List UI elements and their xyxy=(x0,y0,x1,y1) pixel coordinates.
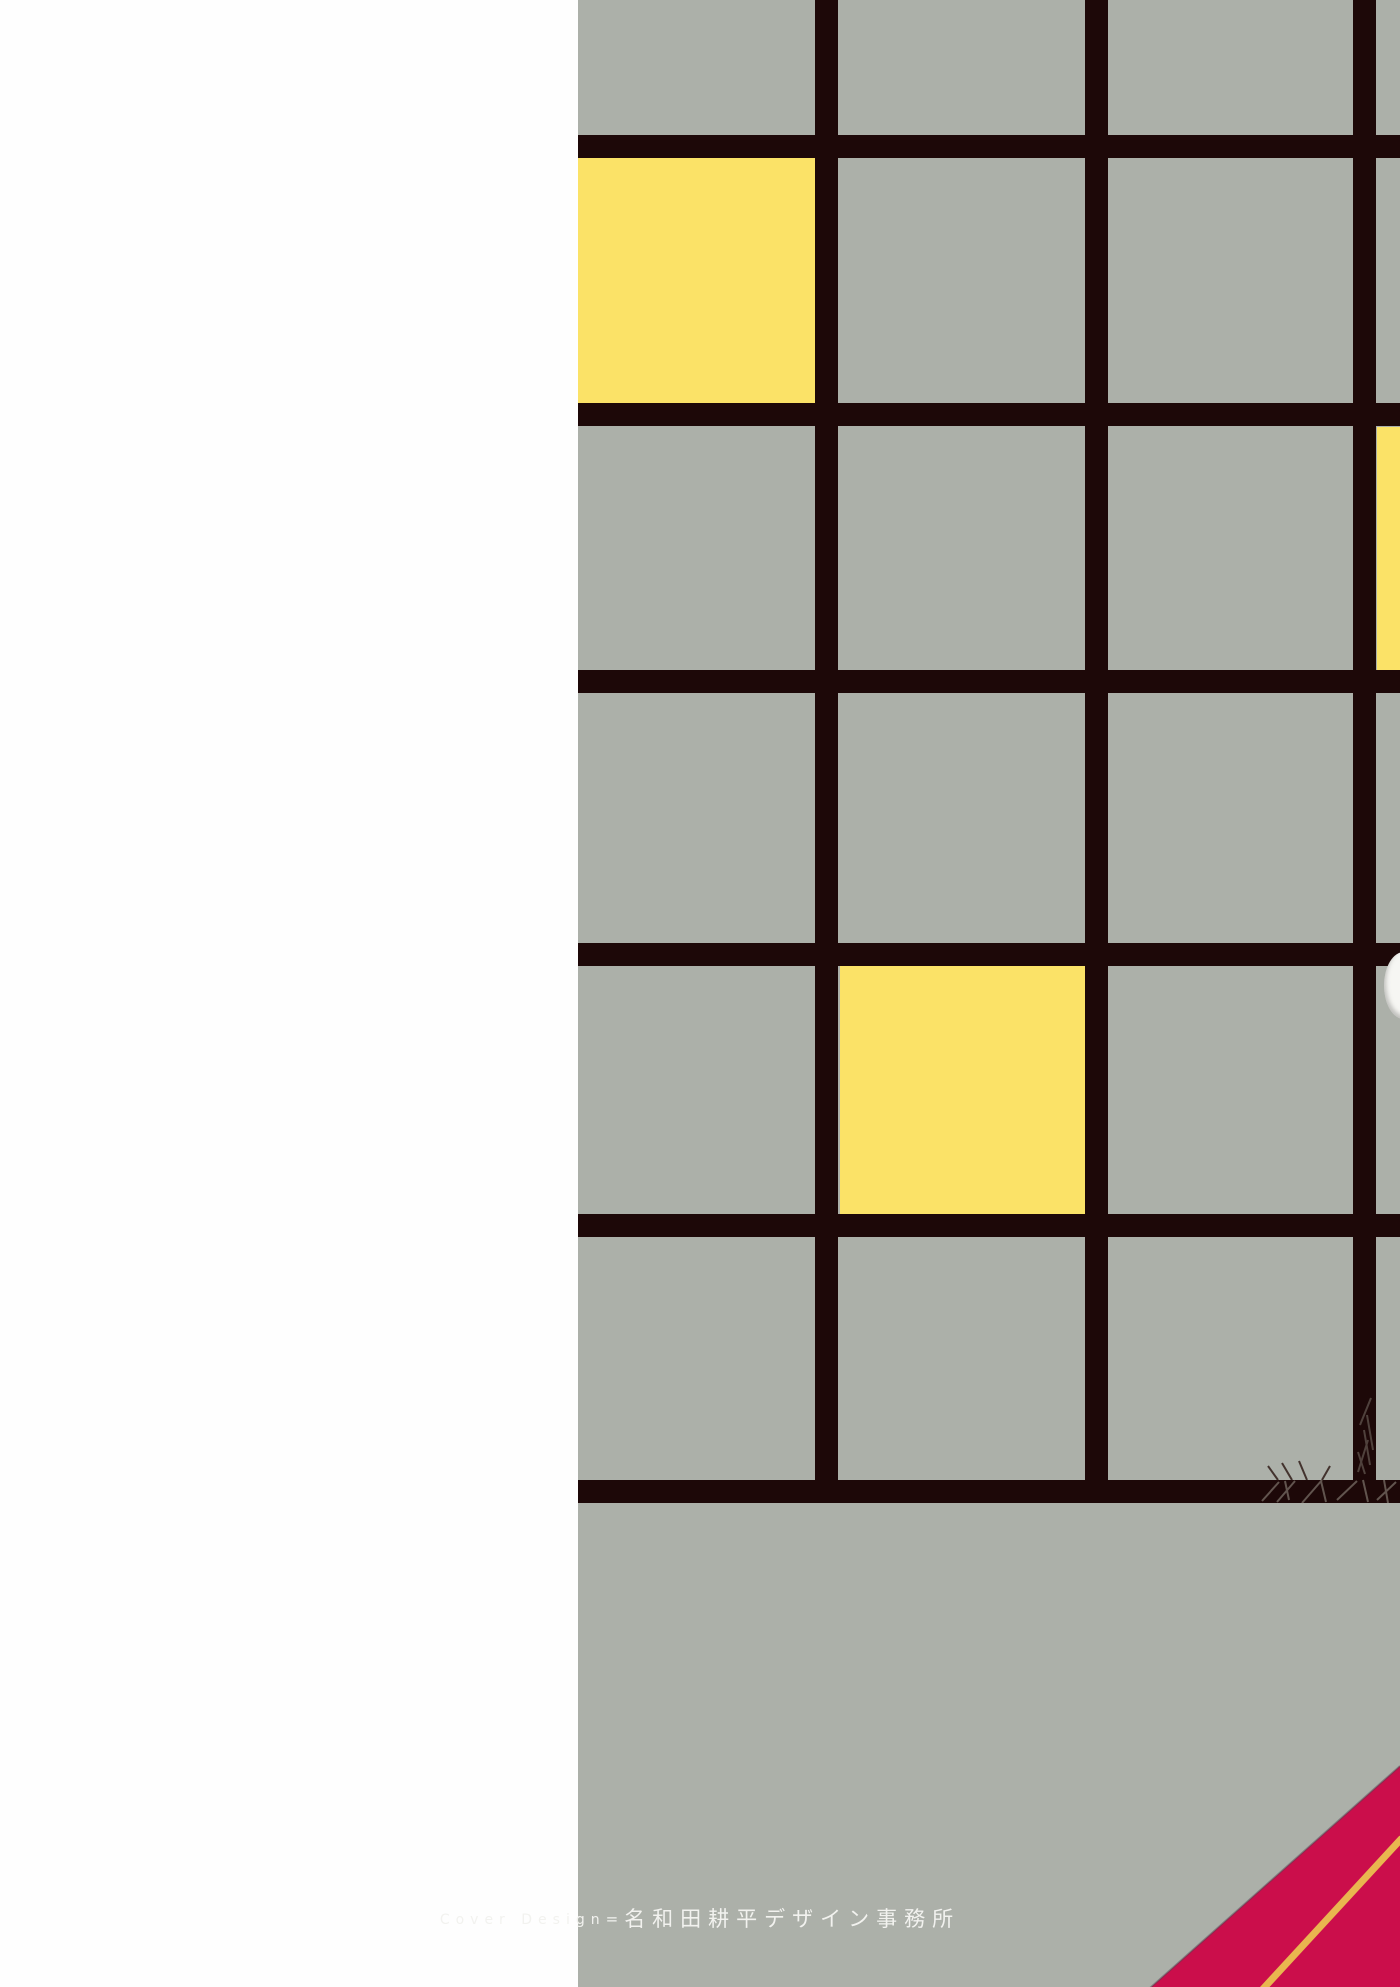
yellow-square xyxy=(578,158,815,403)
credit-text-ja: 名和田耕平デザイン事務所 xyxy=(624,1907,960,1931)
grid-line-horizontal xyxy=(578,943,1400,966)
book-back-cover-scan: Cover Design=名和田耕平デザイン事務所 xyxy=(0,0,1400,1987)
grid-line-vertical xyxy=(815,0,838,1503)
grid-line-vertical xyxy=(1353,0,1376,1503)
red-ribbon xyxy=(1150,1766,1400,1987)
yellow-square-partial xyxy=(1377,427,1400,670)
grid-line-horizontal xyxy=(578,135,1400,158)
credit-equals-sign: = xyxy=(606,1910,625,1928)
white-margin xyxy=(0,0,578,1987)
ribbon-edge-shadow xyxy=(1150,1766,1400,1987)
yellow-square xyxy=(840,966,1085,1214)
grid-line-vertical xyxy=(1085,0,1108,1503)
grid-line-horizontal xyxy=(578,1480,1400,1503)
cover-artwork xyxy=(578,0,1400,1987)
cover-design-credit: Cover Design=名和田耕平デザイン事務所 xyxy=(0,1903,1400,1943)
credit-text-en: Cover Design xyxy=(440,1912,606,1928)
grid-line-horizontal xyxy=(578,1214,1400,1237)
grid-line-horizontal xyxy=(578,403,1400,426)
grid-line-horizontal xyxy=(578,670,1400,693)
